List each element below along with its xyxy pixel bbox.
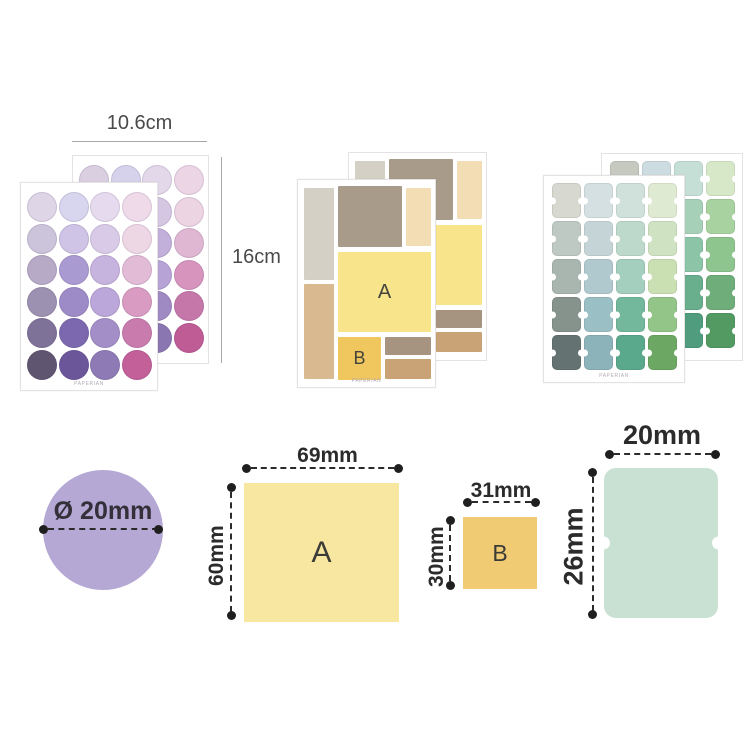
circle-sticker — [90, 287, 120, 317]
brand-text: PAPERIAN — [21, 381, 157, 387]
sheet-width-label: 10.6cm — [72, 112, 207, 135]
sticker-block — [406, 188, 431, 246]
circle-sticker — [27, 192, 57, 222]
circle-sticker — [174, 228, 204, 258]
tab-sticker — [616, 183, 645, 218]
circle-sticker — [122, 350, 152, 380]
tab-sticker — [616, 297, 645, 332]
circle-sticker — [59, 192, 89, 222]
tab-height-line — [592, 477, 594, 611]
green-tab-grid-front — [552, 183, 677, 370]
circle-sticker — [174, 260, 204, 290]
tab-notch — [597, 537, 610, 550]
circle-sticker — [27, 224, 57, 254]
b-height-line — [449, 525, 451, 581]
tab-sticker — [616, 221, 645, 256]
dim-dot — [531, 498, 540, 507]
circle-sticker — [122, 192, 152, 222]
sticker-block — [338, 186, 402, 247]
circle-sticker — [59, 255, 89, 285]
circle-sticker — [122, 255, 152, 285]
circle-sticker — [27, 255, 57, 285]
tab-sticker — [584, 335, 613, 370]
tab-sticker — [648, 183, 677, 218]
tab-notch — [712, 537, 725, 550]
circle-sticker — [122, 318, 152, 348]
dim-dot — [446, 516, 455, 525]
tab-sticker-spec — [604, 468, 718, 618]
purple-circle-grid-front — [27, 192, 152, 380]
b-width-label: 31mm — [461, 479, 541, 503]
b-height-label: 30mm — [425, 527, 449, 587]
mosaic-sticker-sheet-front: A B PAPERIAN — [297, 179, 436, 388]
sticker-block-a: A — [338, 252, 431, 332]
sheet-height-label: 16cm — [232, 246, 281, 269]
tab-sticker — [584, 259, 613, 294]
green-sticker-sheet-front: PAPERIAN — [543, 175, 685, 383]
a-width-line — [251, 467, 394, 469]
sticker-block-b: B — [338, 337, 381, 380]
tab-sticker — [706, 237, 735, 272]
tab-sticker — [706, 161, 735, 196]
dim-dot — [463, 498, 472, 507]
circle-sticker — [59, 287, 89, 317]
circle-sticker — [90, 192, 120, 222]
tab-height-label: 26mm — [559, 507, 590, 587]
circle-sticker — [174, 197, 204, 227]
sticker-block — [385, 337, 431, 355]
circle-sticker-spec — [43, 470, 163, 590]
sticker-block — [436, 332, 482, 352]
dim-dot — [588, 610, 597, 619]
purple-sticker-sheet-front: PAPERIAN — [20, 182, 158, 391]
brand-text: PAPERIAN — [544, 373, 684, 379]
circle-sticker — [90, 318, 120, 348]
tab-width-label: 20mm — [602, 420, 722, 451]
tab-sticker — [706, 313, 735, 348]
dim-dot — [394, 464, 403, 473]
tab-sticker — [648, 259, 677, 294]
tab-sticker — [648, 221, 677, 256]
tab-sticker — [552, 335, 581, 370]
circle-sticker — [122, 287, 152, 317]
circle-sticker — [90, 350, 120, 380]
tab-sticker — [584, 221, 613, 256]
circle-sticker — [27, 350, 57, 380]
dim-dot — [227, 611, 236, 620]
tab-sticker — [584, 183, 613, 218]
sheet-height-line — [221, 157, 222, 363]
circle-diameter-label: Ø 20mm — [43, 497, 163, 526]
sticker-block — [385, 359, 431, 379]
dim-dot — [227, 483, 236, 492]
dim-dot — [588, 468, 597, 477]
dim-dot — [446, 581, 455, 590]
sticker-block — [436, 310, 482, 328]
tab-sticker — [648, 297, 677, 332]
circle-sticker — [59, 318, 89, 348]
circle-sticker — [122, 224, 152, 254]
tab-sticker — [552, 221, 581, 256]
sticker-block — [304, 284, 334, 379]
product-spec-image: 10.6cm 16cm PAPERIAN A B PAPERIAN PAP — [0, 0, 750, 742]
tab-sticker — [648, 335, 677, 370]
a-height-label: 60mm — [205, 526, 229, 586]
dim-dot — [711, 450, 720, 459]
tab-sticker — [616, 335, 645, 370]
a-width-label: 69mm — [270, 444, 385, 468]
sheet-width-line — [72, 141, 207, 142]
b-width-line — [472, 501, 531, 503]
dim-dot — [154, 525, 163, 534]
tab-sticker — [706, 199, 735, 234]
dim-dot — [242, 464, 251, 473]
circle-sticker — [174, 291, 204, 321]
circle-sticker — [174, 323, 204, 353]
circle-sticker — [59, 224, 89, 254]
sticker-block — [304, 188, 334, 280]
circle-sticker — [59, 350, 89, 380]
tab-sticker — [616, 259, 645, 294]
circle-sticker — [174, 165, 204, 195]
circle-sticker — [90, 224, 120, 254]
sticker-block — [457, 161, 482, 219]
brand-text: PAPERIAN — [298, 378, 435, 384]
tab-sticker — [552, 259, 581, 294]
tab-sticker — [706, 275, 735, 310]
circle-sticker — [27, 287, 57, 317]
sticker-b-spec: B — [463, 517, 537, 589]
tab-sticker — [552, 297, 581, 332]
dim-dot — [39, 525, 48, 534]
circle-sticker — [90, 255, 120, 285]
circle-diameter-line — [48, 528, 158, 530]
tab-sticker — [552, 183, 581, 218]
circle-sticker — [27, 318, 57, 348]
sticker-a-spec: A — [244, 483, 399, 622]
tab-sticker — [584, 297, 613, 332]
dim-dot — [605, 450, 614, 459]
a-height-line — [230, 492, 232, 612]
tab-width-line — [614, 453, 711, 455]
